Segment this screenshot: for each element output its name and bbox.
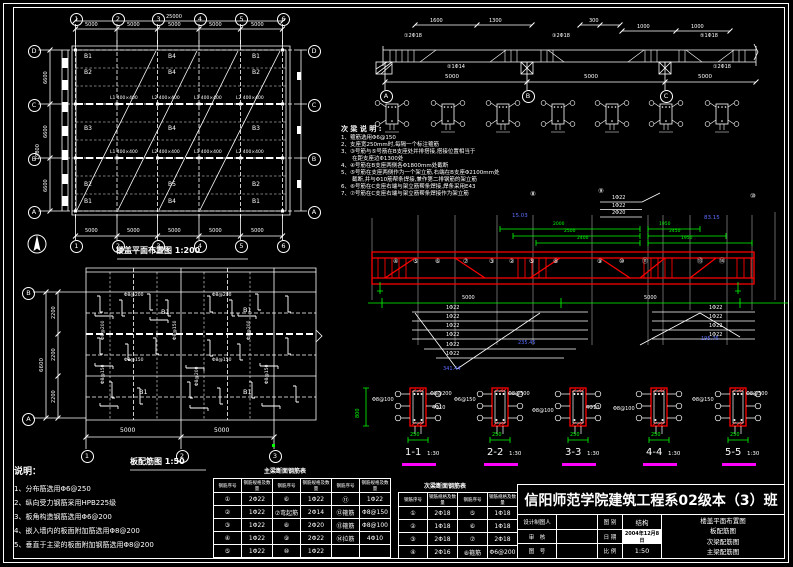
bar-mark: ⑦	[463, 259, 468, 265]
elevation-value: 15.03	[512, 214, 528, 220]
slab-label: B5	[168, 182, 176, 188]
main-beam-elevation	[372, 252, 754, 284]
grid-bubble: 4	[194, 240, 207, 253]
section-label: 4-4	[646, 448, 662, 458]
dim-label: 5000	[251, 229, 264, 234]
dim-label: 5000	[214, 428, 229, 434]
dim-label: 5000	[85, 229, 98, 234]
grid-bubble: A	[308, 206, 321, 219]
bar-mark: ⑧	[530, 191, 536, 198]
dim-label: 1000	[691, 25, 704, 30]
note-line: 1、分布筋选用Φ6@250	[14, 486, 91, 493]
rebar-callout: 1Φ22	[446, 333, 459, 338]
table-row: ②1Φ22⑦弯起筋2Φ14⑫箍筋Φ8@150	[214, 506, 391, 519]
beam-mark: L2 400×400	[236, 97, 264, 102]
slab-label: B2	[84, 182, 92, 188]
table-row: ①2Φ18⑤1Φ18	[399, 507, 518, 520]
titleblock-value: 1:50	[622, 543, 662, 559]
sheet-name: 板配筋图	[700, 526, 746, 537]
drawing-linework	[0, 0, 793, 567]
rebar-callout: 1Φ22	[612, 204, 625, 209]
elevation-value: 83.15	[704, 216, 720, 222]
dim-label: 300	[589, 19, 599, 24]
grid-bubble: D	[308, 45, 321, 58]
bar-length: 341.44	[443, 367, 461, 372]
note-line: 3、板角构造钢筋选用Φ6@200	[14, 514, 112, 521]
bar-length: 235.45	[518, 341, 536, 346]
section-scale: 1:30	[668, 452, 680, 458]
rebar-label: Φ8@150	[212, 359, 232, 364]
grid-bubble: 2	[112, 240, 125, 253]
dim-label: 1950	[681, 237, 692, 242]
dim-label: 5000	[127, 23, 140, 28]
dim-label: 5000	[168, 229, 181, 234]
table-header: 钢筋序号	[214, 479, 242, 493]
rebar-callout: ①2Φ18	[713, 65, 731, 70]
rebar-callout: 1Φ22	[446, 315, 459, 320]
grid-bubble: A	[28, 206, 41, 219]
section-underline	[722, 463, 756, 466]
table-row: ③1Φ22⑧2Φ20⑬箍筋Φ8@100	[214, 519, 391, 532]
note-line: 5、⑤号筋在支座两侧作为一个架立筋,右端在B支座Φ2100mm处	[341, 171, 500, 177]
rebar-callout: 1Φ22	[446, 324, 459, 329]
bar-length: 195.76	[701, 337, 719, 342]
rebar-label: Φ8@200	[102, 321, 107, 341]
grid-bubble: B	[522, 90, 535, 103]
note-line: 5、垂直于主梁的板面附加钢筋选用Φ8@200	[14, 542, 154, 549]
note-line: 1、箍筋选用Φ6@150	[341, 136, 396, 142]
table-header: 钢筋序号	[458, 493, 488, 507]
slab-label: B1	[243, 389, 252, 396]
bar-mark: ⑥	[435, 259, 440, 265]
dim-label: 5000	[127, 229, 140, 234]
section-scale: 1:30	[427, 452, 439, 458]
rebar-callout: 1Φ22	[709, 324, 722, 329]
titleblock-value	[556, 514, 598, 530]
rebar-label: Φ8@200	[212, 294, 232, 299]
date-value: 2004年12月8日	[622, 529, 662, 544]
grid-bubble: 5	[235, 240, 248, 253]
titleblock-value	[556, 543, 598, 559]
slab-label: B1	[84, 199, 92, 205]
dim-label: 6600	[40, 358, 46, 372]
rebar-label: Φ8@150	[102, 365, 107, 385]
dim-label: 5000	[462, 296, 475, 301]
note-line: 截断,并与Φ10筋帮条焊接,兼作第二排钢筋的架立筋	[341, 178, 477, 184]
dim-label: 1000	[637, 25, 650, 30]
rebar-callout: Φ8@150	[692, 398, 714, 403]
dim-label: 1300	[489, 19, 502, 24]
slab-label: B1	[84, 54, 92, 60]
dim-label: 1600	[430, 19, 443, 24]
section-underline	[562, 463, 596, 466]
beam-mark: L2 400×400	[236, 151, 264, 156]
rebar-callout: ②1Φ14	[447, 65, 465, 70]
rebar-callout: 1Φ22	[446, 306, 459, 311]
dim-label: 800	[356, 408, 361, 418]
dim-label: 250	[410, 433, 420, 438]
cad-drawing-sheet: 25000 5000 5000 5000 5000 5000 5000 5000…	[0, 0, 793, 567]
table-header: 钢筋序号	[273, 479, 301, 493]
section-label: 3-3	[565, 448, 581, 458]
dim-label: 2200	[52, 306, 57, 319]
rebar-callout: 1Φ22	[446, 352, 459, 357]
note-line: 2、支座宽250mm时,每隔一个标注箍筋	[341, 143, 439, 149]
bar-mark: ⑧	[553, 259, 558, 265]
slab-label: B4	[168, 126, 176, 132]
rebar-callout: Φ8@100	[613, 407, 635, 412]
grid-bubble: 1	[70, 240, 83, 253]
slab-label: B1	[252, 199, 260, 205]
rebar-callout: 4Φ10	[586, 406, 599, 411]
slab-label: B3	[84, 126, 92, 132]
dim-label: 5000	[168, 23, 181, 28]
rebar-callout: ①2Φ18	[404, 34, 422, 39]
grid-bubble: B	[308, 153, 321, 166]
section-label: 1-1	[405, 448, 421, 458]
beam-mark: L1 400×400	[110, 97, 138, 102]
secondary-beam-rebar-table: 钢筋序号 钢筋规格及数量 钢筋序号 钢筋规格及数量 ①2Φ18⑤1Φ18 ②1Φ…	[398, 492, 518, 559]
slab-label: B4	[168, 70, 176, 76]
titleblock-label: 审 核	[517, 529, 557, 544]
dim-label: 5000	[445, 75, 459, 81]
note-line: 6、⑥号筋在C支座右端与架立筋帮条焊接,焊条采用E43	[341, 185, 476, 191]
notes-title: 次 梁 说 明 :	[341, 126, 382, 133]
dim-label: 250	[492, 433, 502, 438]
dim-label: 250	[651, 433, 661, 438]
grid-bubble: A	[22, 413, 35, 426]
grid-bubble: C	[28, 99, 41, 112]
beam-mark: L2 400×400	[152, 151, 180, 156]
grid-bubble: 2	[176, 450, 189, 463]
table-title: 次梁断面钢筋表	[424, 484, 466, 490]
bar-mark: ⑨	[598, 188, 604, 195]
bar-mark: ⑤	[413, 259, 418, 265]
sheet-name: 主梁配筋图	[700, 547, 746, 558]
bar-mark: ⑤	[529, 259, 534, 265]
dim-label: 2000	[553, 223, 564, 228]
rebar-callout: 1Φ22	[709, 306, 722, 311]
table-header: 钢筋规格及数量	[301, 479, 332, 493]
rebar-label: Φ8@150	[174, 321, 179, 341]
titleblock-value	[556, 529, 598, 544]
note-line: 在距支座边Φ1300处	[341, 157, 403, 163]
rebar-label: Φ8@200	[124, 294, 144, 299]
slab-label: B1	[243, 307, 252, 314]
grid-bubble: C	[308, 99, 321, 112]
table-title: 主梁断面钢筋表	[264, 469, 306, 475]
slab-label: B4	[168, 199, 176, 205]
bar-mark: ⑭	[719, 259, 725, 265]
titleblock-value: 结构	[622, 514, 662, 530]
dim-label: 1950	[659, 223, 670, 228]
dim-label: 25000	[166, 15, 182, 20]
bar-mark: ⑬	[697, 259, 703, 265]
note-line: 4、嵌入墙内的板面附加筋选用Φ8@200	[14, 528, 140, 535]
bar-mark: ②	[509, 259, 514, 265]
section-underline	[402, 463, 436, 466]
beam-mark: L1 400×400	[110, 151, 138, 156]
north-arrow-icon	[28, 235, 46, 253]
titleblock-label: 设计制图人	[517, 514, 557, 530]
rebar-callout: 1Φ22	[709, 315, 722, 320]
rebar-callout: 2Φ20	[612, 211, 625, 216]
section-label: 5-5	[725, 448, 741, 458]
bar-mark: ④	[393, 259, 398, 265]
rebar-label: Φ8@150	[124, 359, 144, 364]
grid-bubble: 3	[152, 13, 165, 26]
slab-label: B1	[161, 309, 170, 316]
dim-label: 2500	[564, 230, 575, 235]
table-header: 钢筋规格及数量	[360, 479, 391, 493]
section-label: 2-2	[487, 448, 503, 458]
dim-label: 5000	[251, 23, 264, 28]
grid-bubble: B	[28, 153, 41, 166]
titleblock-label: 图 别	[597, 514, 623, 530]
table-row: ②1Φ18⑥1Φ18	[399, 520, 518, 533]
section-underline	[643, 463, 677, 466]
rebar-label: Φ8@200	[248, 321, 253, 341]
slab-label: B2	[252, 182, 260, 188]
sheet-name: 楼盖平面布置图	[700, 516, 746, 527]
bar-mark: ⑩	[750, 193, 756, 200]
dim-label: 2450	[669, 230, 680, 235]
sheet-name: 次梁配筋图	[700, 537, 746, 548]
dim-label: 5000	[644, 296, 657, 301]
note-line: 7、⑦号筋在C支座右端与架立筋帮条焊接作为架立筋	[341, 192, 469, 198]
rebar-callout: ③2Φ18	[552, 34, 570, 39]
table-row: ④2Φ16⑧箍筋Φ6@200	[399, 546, 518, 559]
dim-label: 5000	[209, 229, 222, 234]
grid-bubble: 3	[152, 240, 165, 253]
grid-bubble: 2	[112, 13, 125, 26]
slab-label: B1	[252, 54, 260, 60]
notes-title: 说明：	[14, 468, 41, 477]
sheet-contents: 楼盖平面布置图 板配筋图 次梁配筋图 主梁配筋图	[661, 514, 785, 559]
grid-bubble: 4	[194, 13, 207, 26]
grid-bubble: 6	[277, 13, 290, 26]
table-header: 钢筋序号	[399, 493, 428, 507]
section-scale: 1:30	[747, 452, 759, 458]
grid-bubble: C	[660, 90, 673, 103]
section-scale: 1:30	[587, 452, 599, 458]
slab-label: B3	[252, 126, 260, 132]
table-row: ①2Φ22⑥1Φ22⑪1Φ22	[214, 493, 391, 506]
table-row: ③2Φ18⑦2Φ18	[399, 533, 518, 546]
rebar-callout: ⑤1Φ18	[700, 34, 718, 39]
slab-label: B2	[252, 70, 260, 76]
titleblock-label: 图 号	[517, 543, 557, 559]
table-header: 钢筋规格及数量	[488, 493, 518, 507]
bar-mark: ⑪	[642, 259, 648, 265]
bar-mark: ③	[489, 259, 494, 265]
titleblock-label: 比 例	[597, 543, 623, 559]
table-row: ⑤1Φ22⑩1Φ22	[214, 545, 391, 558]
main-beam-rebar-table: 钢筋序号 钢筋规格及数量 钢筋序号 钢筋规格及数量 钢筋序号 钢筋规格及数量 ①…	[213, 478, 391, 558]
rebar-callout: Φ8@500	[746, 392, 768, 397]
rebar-callout: Φ8@200	[430, 392, 452, 397]
bar-mark: ⑨	[597, 259, 602, 265]
dim-label: 250	[730, 433, 740, 438]
beam-mark: L2 400×400	[152, 97, 180, 102]
table-header: 钢筋序号	[332, 479, 360, 493]
grid-bubble: B	[22, 287, 35, 300]
dim-label: 6600	[44, 179, 49, 192]
slab-label: B4	[168, 54, 176, 60]
rebar-label: Φ8@200	[196, 367, 201, 387]
grid-bubble: 6	[277, 240, 290, 253]
grid-bubble: D	[28, 45, 41, 58]
dim-label: 250	[570, 433, 580, 438]
bar-mark: ⑩	[619, 259, 624, 265]
note-line: 2、纵向受力钢筋采用HPB225级	[14, 500, 116, 507]
rebar-callout: 4Φ10	[432, 406, 445, 411]
dim-label: 5000	[209, 23, 222, 28]
table-header: 钢筋规格及数量	[242, 479, 273, 493]
grid-bubble: 1	[70, 13, 83, 26]
dim-label: 5000	[120, 428, 135, 434]
note-line: 3、③号筋与⑤号筋在B支座处并排搭接,搭接位置相当于	[341, 150, 475, 156]
rebar-callout: Φ8@500	[508, 392, 530, 397]
section-scale: 1:30	[509, 452, 521, 458]
rebar-label: Φ8@150	[266, 365, 271, 385]
rebar-callout: Φ8@100	[372, 398, 394, 403]
dim-label: 2200	[52, 348, 57, 361]
rebar-callout: Φ6@150	[454, 398, 476, 403]
dim-label: 5000	[584, 75, 598, 81]
table-header: 钢筋规格及数量	[428, 493, 458, 507]
grid-bubble: 1	[81, 450, 94, 463]
rebar-callout: Φ8@100	[532, 409, 554, 414]
dim-label: 6600	[44, 125, 49, 138]
beam-mark: L1 400×400	[194, 151, 222, 156]
dim-label: 2400	[577, 237, 588, 242]
titleblock-label: 日 期	[597, 529, 623, 544]
sheet-owner-title: 信阳师范学院建筑工程系02级本（3）班	[517, 484, 785, 515]
grid-bubble: 3	[269, 450, 282, 463]
rebar-callout: 1Φ22	[446, 343, 459, 348]
beam-mark: L1 400×400	[194, 97, 222, 102]
slab-label: B2	[84, 70, 92, 76]
rebar-callout: 1Φ22	[612, 196, 625, 201]
slab-label: B1	[139, 389, 148, 396]
note-line: 4、④号筋在B支座两侧各Φ1800mm处截断	[341, 164, 448, 170]
dim-label: 5000	[698, 75, 712, 81]
grid-bubble: A	[380, 90, 393, 103]
dim-label: 6600	[44, 71, 49, 84]
table-row: ④1Φ22⑨2Φ22⑭拉筋4Φ10	[214, 532, 391, 545]
section-underline	[484, 463, 518, 466]
dim-label: 5000	[85, 23, 98, 28]
grid-bubble: 5	[235, 13, 248, 26]
dim-label: 2200	[52, 390, 57, 403]
